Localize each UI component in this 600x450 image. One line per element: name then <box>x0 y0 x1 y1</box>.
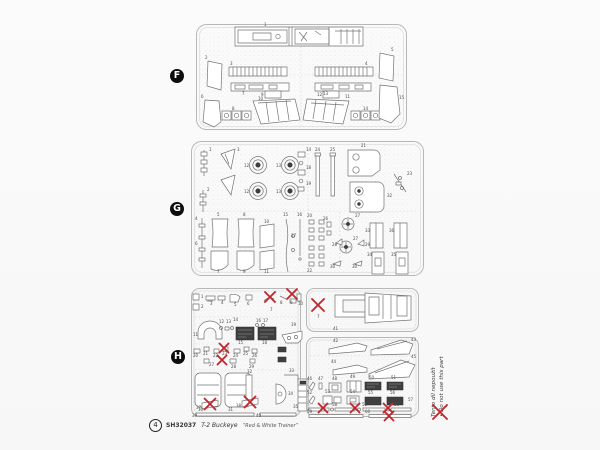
kit-code: SH32037 <box>166 422 196 429</box>
part-number-label: 21 <box>203 351 209 356</box>
do-not-use-legend-x <box>431 403 449 421</box>
part-number-label: 50 <box>369 375 375 380</box>
footer: 4 SH32037 T-2 Buckeye “Red & White Train… <box>149 419 298 432</box>
part-number-label: 10 <box>258 96 264 101</box>
part-number-label: 27 <box>353 236 359 241</box>
part-number-label: 10 <box>298 301 304 306</box>
part-number-label: 15 <box>399 95 405 100</box>
sprue-h-right-bottom-diagram: 4243444546474849505152535455565758585859… <box>305 336 420 418</box>
part-number-label: 45 <box>411 354 417 359</box>
part-outline <box>379 53 394 81</box>
part-number-label: 32 <box>387 193 393 198</box>
part-number-label: 27 <box>355 213 361 218</box>
part-number-label: 27 <box>209 362 215 367</box>
part-number-label: 33 <box>365 228 371 233</box>
part-number-label: 20 <box>307 213 313 218</box>
part-number-label: 46 <box>307 376 313 381</box>
part-number-label: 12 <box>244 189 250 194</box>
part-number-label: 43 <box>411 337 417 342</box>
part-number-label: 34 <box>288 391 294 396</box>
part-number-label: 58 <box>362 402 368 407</box>
part-number-label: 24 <box>233 353 239 358</box>
part-number-label: 18 <box>306 165 312 170</box>
part-number-label: 30 <box>330 264 336 269</box>
part-number-label: 24 <box>315 147 321 152</box>
part-number-label: 17 <box>291 233 297 238</box>
part-number-label: 16 <box>256 318 262 323</box>
part-number-label: 29 <box>365 242 371 247</box>
kit-variant: “Red & White Trainer” <box>243 423 299 429</box>
sprue-h-left-diagram: 1234567891011121314151617181920212223242… <box>190 287 302 418</box>
part-number-label: 17 <box>263 318 269 323</box>
part-number-label: 26 <box>323 216 329 221</box>
part-number-label: 36 <box>389 228 395 233</box>
part-number-label: 40 <box>256 413 262 418</box>
part-outline <box>265 91 281 98</box>
part-number-label: 13 <box>276 189 282 194</box>
sprue-h-right-top-diagram: 741 <box>305 287 420 333</box>
part-number-label: 55 <box>368 390 374 395</box>
part-number-label: 11 <box>345 94 351 99</box>
part-number-label: 28 <box>231 364 237 369</box>
sprue-letter-badge-f: F <box>170 69 184 83</box>
part-number-label: 12 <box>244 163 250 168</box>
sprue-letter-badge-g: G <box>170 202 184 216</box>
part-number-label: 58 <box>394 402 400 407</box>
part-number-label: 12 <box>317 92 323 97</box>
part-number-label: 42 <box>333 338 339 343</box>
kit-name: T-2 Buckeye <box>201 422 237 429</box>
part-number-label: 49 <box>350 374 356 379</box>
sprue-letter-f: F <box>174 70 181 81</box>
part-number-label: 28 <box>332 242 338 247</box>
part-number-label: 60 <box>365 409 371 414</box>
part-number-label: 14 <box>306 147 312 152</box>
part-number-label: 44 <box>331 359 337 364</box>
part-number-label: 10 <box>264 219 270 224</box>
part-number-label: 19 <box>291 322 297 327</box>
part-number-label: 52 <box>307 390 313 395</box>
part-number-label: 58 <box>332 402 338 407</box>
part-number-label: 48 <box>332 376 338 381</box>
sprue-letter-badge-h: H <box>171 350 185 364</box>
part-number-label: 18 <box>262 340 268 345</box>
part-number-label: 23 <box>407 171 413 176</box>
part-number-label: 13 <box>323 91 329 96</box>
part-number-label: 16 <box>297 212 303 217</box>
kit-info-line: SH32037 T-2 Buckeye “Red & White Trainer… <box>166 422 298 429</box>
part-number-label: 54 <box>350 389 356 394</box>
do-not-use-x-mark <box>433 405 447 419</box>
part-number-label: 14 <box>233 317 239 322</box>
part-number-label: 22 <box>307 268 313 273</box>
part-number-label: 15 <box>283 212 289 217</box>
part-number-label: 19 <box>306 181 312 186</box>
sprue-g-diagram: 1321213121314181924252132234586107911151… <box>190 140 425 277</box>
part-number-label: 12 <box>219 319 225 324</box>
part-number-label: 37 <box>196 405 202 410</box>
part-outline <box>203 100 221 127</box>
sprue-letter-h: H <box>174 351 182 362</box>
part-number-label: 21 <box>361 143 367 148</box>
part-number-label: 25 <box>330 147 336 152</box>
part-number-label: 31 <box>228 407 234 412</box>
part-number-label: 20 <box>193 353 199 358</box>
part-number-label: 41 <box>333 326 339 331</box>
part-number-label: 26 <box>252 353 258 358</box>
part-number-label: 32 <box>247 369 253 374</box>
part-number-label: 53 <box>325 389 331 394</box>
part-number-label: 11 <box>264 269 270 274</box>
page-number-badge: 4 <box>149 419 162 432</box>
part-number-label: 15 <box>238 340 244 345</box>
part-number-label: 38 <box>236 403 242 408</box>
part-number-label: 34 <box>367 252 373 257</box>
part-number-label: 35 <box>391 252 397 257</box>
part-outline <box>379 85 400 123</box>
part-number-label: 33 <box>289 368 295 373</box>
sprue-letter-g: G <box>173 203 181 214</box>
part-number-label: 13 <box>226 319 232 324</box>
part-number-label: 25 <box>243 351 249 356</box>
part-number-label: 59 <box>307 409 313 414</box>
part-number-label: 51 <box>391 375 397 380</box>
part-number-label: 30 <box>352 264 358 269</box>
part-number-label: 35 <box>293 404 299 409</box>
part-outline <box>207 61 222 90</box>
part-number-label: 47 <box>318 376 324 381</box>
part-number-label: 13 <box>276 163 282 168</box>
part-number-label: 11 <box>193 332 199 337</box>
part-number-label: 14 <box>363 106 369 111</box>
part-number-label: 39 <box>192 413 198 418</box>
part-number-label: 57 <box>408 397 414 402</box>
sprue-f-diagram: 123456789101112131415 <box>195 23 408 131</box>
part-number-label: 56 <box>390 390 396 395</box>
part-outline <box>235 27 363 46</box>
